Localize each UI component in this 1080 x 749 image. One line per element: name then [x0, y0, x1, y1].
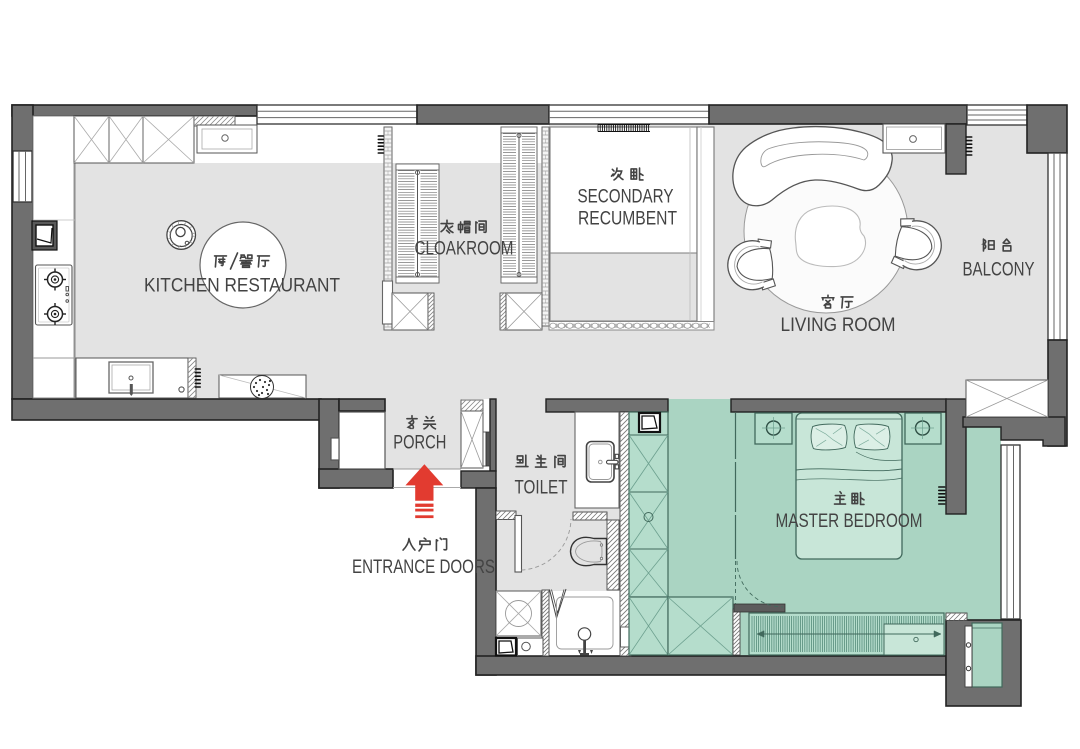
svg-text:CLOAKROOM: CLOAKROOM — [415, 238, 514, 259]
svg-text:MASTER BEDROOM: MASTER BEDROOM — [776, 511, 923, 532]
svg-text:RECUMBENT: RECUMBENT — [578, 208, 677, 229]
svg-text:LIVING ROOM: LIVING ROOM — [781, 315, 896, 336]
svg-text:PORCH: PORCH — [393, 432, 446, 453]
svg-text:KITCHEN RESTAURANT: KITCHEN RESTAURANT — [144, 275, 340, 296]
svg-text:TOILET: TOILET — [515, 477, 568, 498]
svg-text:BALCONY: BALCONY — [963, 259, 1035, 280]
svg-text:SECONDARY: SECONDARY — [578, 186, 674, 207]
svg-text:ENTRANCE DOORS: ENTRANCE DOORS — [352, 557, 495, 578]
